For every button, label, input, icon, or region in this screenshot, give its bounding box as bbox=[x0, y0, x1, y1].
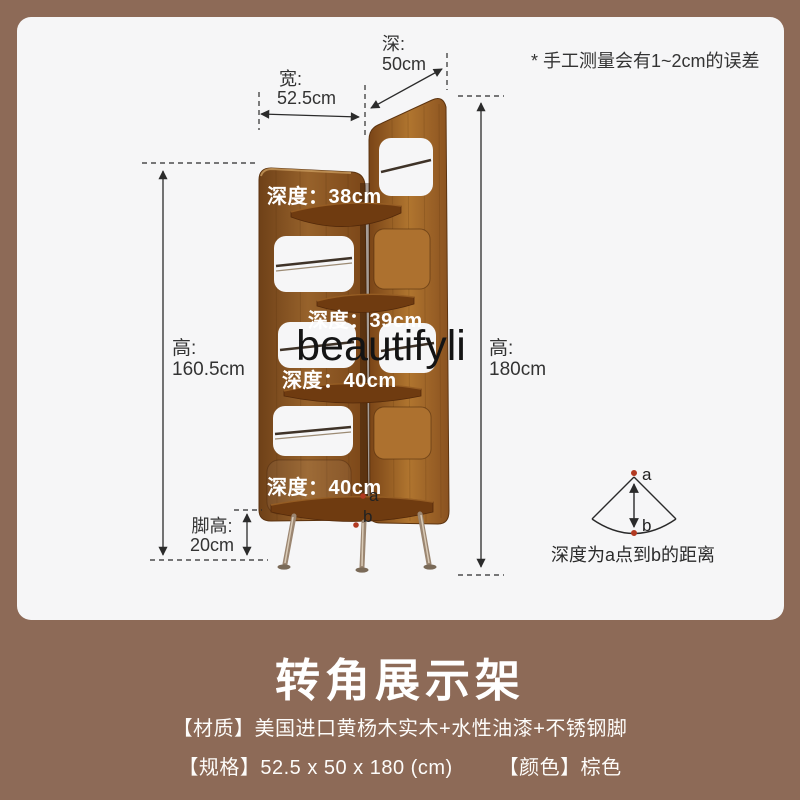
height-left-label: 高: bbox=[172, 337, 196, 359]
width-arrow bbox=[261, 114, 359, 117]
point-a-dot bbox=[360, 493, 366, 499]
fan-point-a-dot bbox=[631, 470, 637, 476]
depth-definition-fan: a b 深度为a点到b的距离 bbox=[551, 465, 715, 565]
height-right-value: 180cm bbox=[489, 359, 546, 380]
shelf-depth-38: 深度：38cm bbox=[267, 184, 382, 208]
point-a-label: a bbox=[369, 486, 379, 505]
depth-dim-value: 50cm bbox=[382, 54, 426, 74]
watermark: beautifyli bbox=[296, 322, 466, 370]
color-text: 【颜色】棕色 bbox=[499, 751, 622, 780]
leg-height-value: 20cm bbox=[190, 535, 234, 555]
height-left-value: 160.5cm bbox=[172, 359, 245, 380]
leg-height-label: 脚高: bbox=[191, 516, 232, 536]
point-b-label: b bbox=[363, 507, 372, 526]
product-spec-image: 深: 50cm 宽: 52.5cm * 手工测量会有1~2cm的误差 高: 16… bbox=[0, 0, 800, 800]
fan-caption: 深度为a点到b的距离 bbox=[551, 545, 715, 565]
depth-dim-label: 深: bbox=[382, 34, 405, 54]
product-title: 转角展示架 bbox=[0, 644, 800, 709]
width-dim-label: 宽: bbox=[279, 69, 302, 89]
width-dim-value: 52.5cm bbox=[277, 88, 336, 108]
material-line: 【材质】美国进口黄杨木实木+水性油漆+不锈钢脚 bbox=[0, 712, 800, 741]
fan-point-a-label: a bbox=[642, 465, 652, 484]
fan-point-b-dot bbox=[631, 530, 637, 536]
measurement-note: * 手工测量会有1~2cm的误差 bbox=[531, 51, 760, 71]
height-right-label: 高: bbox=[489, 337, 513, 359]
dimension-diagram: 深: 50cm 宽: 52.5cm * 手工测量会有1~2cm的误差 高: 16… bbox=[0, 0, 800, 625]
point-b-dot bbox=[353, 522, 359, 528]
fan-point-b-label: b bbox=[642, 516, 651, 535]
spec-color-line: 【规格】52.5 x 50 x 180 (cm) 【颜色】棕色 bbox=[0, 751, 800, 780]
spec-text: 【规格】52.5 x 50 x 180 (cm) bbox=[178, 751, 452, 780]
shelf-depth-40-upper: 深度：40cm bbox=[282, 368, 397, 392]
